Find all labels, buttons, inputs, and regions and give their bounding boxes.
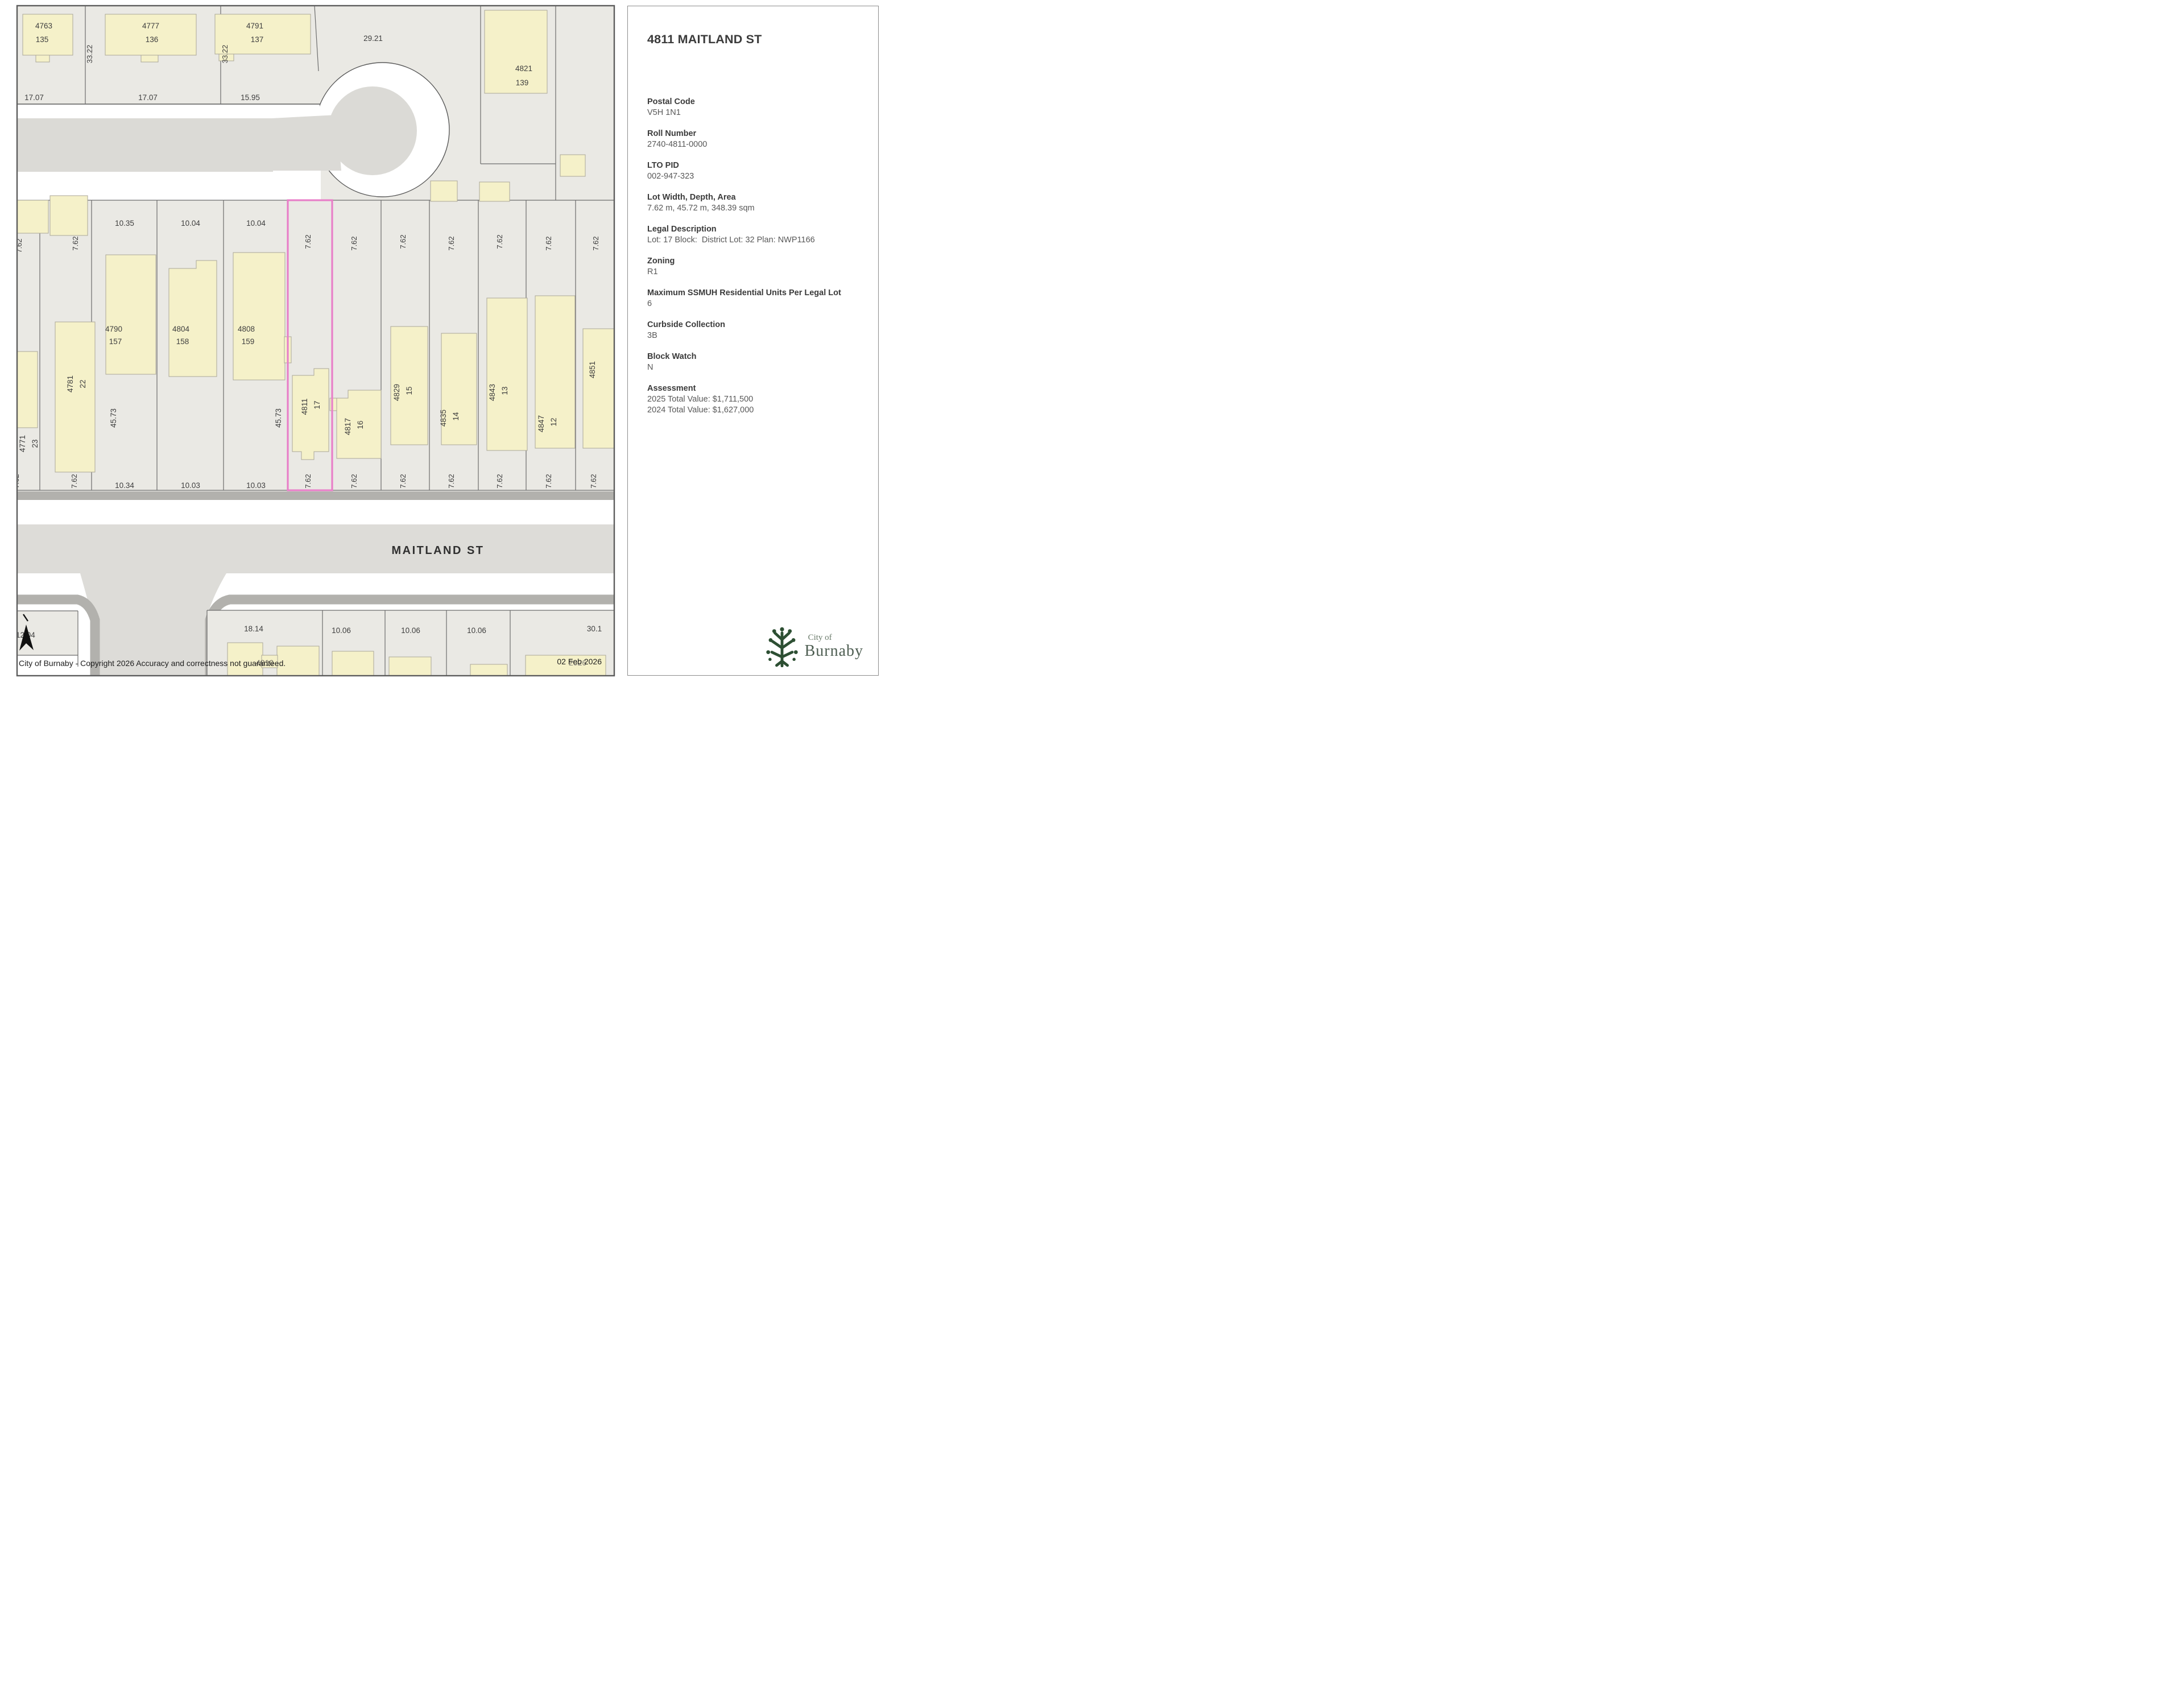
dim-label: 7.62	[71, 236, 80, 250]
address-label: 4771	[18, 435, 27, 452]
address-label: 4781	[66, 375, 75, 392]
lot-number-label: 136	[146, 35, 159, 44]
field-curbside-collection: Curbside Collection 3B	[647, 320, 859, 341]
field-value: 6	[647, 299, 859, 309]
logo-city-of: City of	[808, 633, 863, 643]
address-label: 4817	[344, 418, 352, 435]
culdesac-dim-label: 29.21	[363, 34, 383, 43]
address-label: 4835	[439, 410, 448, 427]
dim-label: 10.06	[332, 626, 351, 635]
address-label: 4808	[238, 325, 255, 333]
field-assessment: Assessment 2025 Total Value: $1,711,500 …	[647, 383, 859, 416]
field-ssmuh-units: Maximum SSMUH Residential Units Per Lega…	[647, 288, 859, 309]
address-label: 4804	[172, 325, 190, 333]
dim-label: 17.07	[138, 93, 158, 102]
field-value: V5H 1N1	[647, 107, 859, 118]
dim-label: 7.62	[350, 474, 358, 488]
lot-number-label: 14	[452, 412, 460, 421]
address-label: 4791	[246, 22, 263, 30]
address-label: 4790	[105, 325, 122, 333]
field-zoning: Zoning R1	[647, 256, 859, 278]
property-fields: Postal Code V5H 1N1 Roll Number 2740-481…	[647, 97, 859, 416]
dim-label: 10.06	[401, 626, 420, 635]
dim-label: 10.34	[115, 481, 134, 490]
lot-number-label: 15	[405, 386, 413, 395]
selected-parcel-house	[292, 369, 329, 460]
field-label: Zoning	[647, 256, 859, 267]
burnaby-logo: City of Burnaby	[764, 625, 863, 667]
selected-address-label: 4811	[300, 398, 309, 415]
field-value: 002-947-323	[647, 171, 859, 182]
field-block-watch: Block Watch N	[647, 352, 859, 373]
field-value: 2024 Total Value: $1,627,000	[647, 405, 859, 416]
dim-label: 7.62	[544, 236, 553, 250]
address-label: 4851	[588, 361, 597, 378]
lot-number-label: 22	[78, 379, 87, 388]
dim-label: 10.04	[181, 219, 200, 228]
field-label: Legal Description	[647, 224, 859, 235]
field-value: N	[647, 362, 859, 373]
address-label: 4821	[515, 64, 532, 73]
dim-label: 7.62	[591, 236, 600, 250]
dim-label: 7.62	[447, 474, 456, 488]
dim-label: 10.04	[246, 219, 266, 228]
dim-label: 17.07	[24, 93, 44, 102]
dim-label: 7.62	[544, 474, 553, 488]
field-value: 7.62 m, 45.72 m, 348.39 sqm	[647, 203, 859, 214]
field-lto-pid: LTO PID 002-947-323	[647, 160, 859, 182]
date-text: 02 Feb 2026	[557, 657, 602, 666]
logo-burnaby: Burnaby	[805, 643, 863, 659]
address-label: 4829	[392, 384, 401, 401]
copyright-text: City of Burnaby - Copyright 2026 Accurac…	[19, 659, 286, 668]
lot-number-label: 13	[500, 386, 509, 395]
field-legal-description: Legal Description Lot: 17 Block: Distric…	[647, 224, 859, 246]
dim-label: 7.62	[447, 236, 456, 250]
dim-label: 7.62	[399, 474, 407, 488]
dim-label: 18.14	[244, 625, 263, 633]
field-value: R1	[647, 267, 859, 278]
field-value: Lot: 17 Block: District Lot: 32 Plan: NW…	[647, 235, 859, 246]
dim-label: 7.62	[495, 234, 504, 249]
lot-number-label: 158	[176, 337, 189, 346]
dim-label: 7.62	[495, 474, 504, 488]
dim-label: 7.62	[70, 474, 78, 488]
dim-label: 33.22	[85, 45, 94, 64]
field-label: Maximum SSMUH Residential Units Per Lega…	[647, 288, 859, 299]
depth-dim-label: 45.73	[274, 408, 283, 428]
lot-number-label: 135	[36, 35, 49, 44]
field-roll-number: Roll Number 2740-4811-0000	[647, 129, 859, 150]
address-label: 4843	[488, 384, 497, 401]
field-label: Curbside Collection	[647, 320, 859, 330]
field-value: 2740-4811-0000	[647, 139, 859, 150]
field-value: 2025 Total Value: $1,711,500	[647, 394, 859, 405]
dim-label: 7.62	[15, 238, 23, 253]
field-label: LTO PID	[647, 160, 859, 171]
burnaby-tree-icon	[764, 625, 800, 667]
address-label: 4763	[35, 22, 52, 30]
lot-number-label: 12	[549, 417, 558, 426]
lot-number-label: 16	[356, 420, 365, 429]
dim-label: 10.03	[181, 481, 200, 490]
dim-label: 7.62	[304, 474, 312, 488]
selected-lot-number-label: 17	[313, 400, 321, 409]
depth-dim-label: 45.73	[109, 408, 118, 428]
field-lot-dimensions: Lot Width, Depth, Area 7.62 m, 45.72 m, …	[647, 192, 859, 214]
dim-label: 7.62	[350, 236, 358, 250]
field-label: Assessment	[647, 383, 859, 394]
dim-label: 7.62	[399, 234, 407, 249]
dim-label: 10.35	[115, 219, 134, 228]
field-label: Postal Code	[647, 97, 859, 107]
address-label: 4777	[142, 22, 159, 30]
field-label: Roll Number	[647, 129, 859, 139]
logo-text: City of Burnaby	[805, 633, 863, 659]
dim-label: 7.62	[589, 474, 598, 488]
lot-number-label: 157	[109, 337, 122, 346]
field-label: Lot Width, Depth, Area	[647, 192, 859, 203]
address-label: 4847	[537, 415, 545, 432]
field-label: Block Watch	[647, 352, 859, 362]
street-name-label: MAITLAND ST	[391, 544, 484, 557]
dim-label: 15.95	[241, 93, 260, 102]
dim-label: 10.06	[467, 626, 486, 635]
lot-number-label: 23	[31, 439, 39, 448]
dim-label: 7.62	[304, 234, 312, 249]
lot-number-label: 159	[242, 337, 255, 346]
field-value: 3B	[647, 330, 859, 341]
info-panel: 4811 MAITLAND ST Postal Code V5H 1N1 Rol…	[627, 6, 879, 676]
lot-number-label: 137	[251, 35, 264, 44]
burnaby-map-viewer: 4763 135 33.22 4777 136 33.22 4791 137 1…	[0, 0, 882, 681]
lot-number-label: 139	[516, 78, 529, 87]
dim-label: 33.22	[221, 45, 229, 64]
panel-title: 4811 MAITLAND ST	[647, 32, 859, 47]
dim-label: 30.1	[587, 625, 602, 633]
field-postal-code: Postal Code V5H 1N1	[647, 97, 859, 118]
dim-label: 7.62	[12, 474, 20, 488]
dim-label: 10.03	[246, 481, 266, 490]
